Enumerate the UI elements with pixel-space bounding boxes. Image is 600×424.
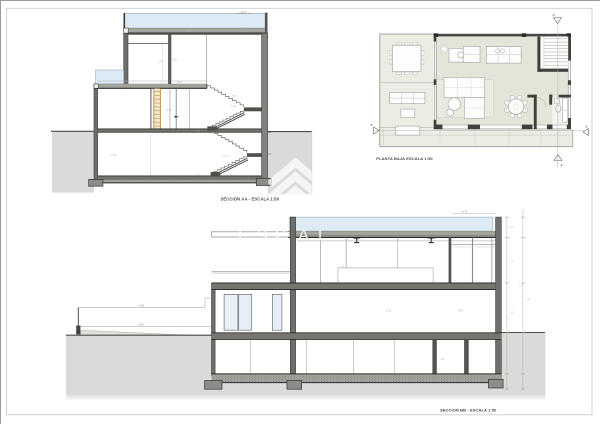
svg-text:B: B: [586, 125, 588, 129]
svg-text:PLANTA BAJA ESCALA 1:50: PLANTA BAJA ESCALA 1:50: [376, 156, 433, 161]
svg-text:P: P: [275, 228, 286, 245]
svg-text:L: L: [318, 228, 327, 245]
svg-text:-0.45: -0.45: [138, 324, 144, 327]
svg-text:+0.00: +0.00: [195, 131, 201, 133]
svg-text:+3.35: +3.35: [186, 31, 192, 33]
svg-text:+3.00: +3.00: [177, 82, 183, 84]
svg-text:7.30: 7.30: [440, 359, 445, 361]
svg-text:+0.00: +0.00: [138, 304, 145, 307]
svg-text:+3.35: +3.35: [242, 27, 248, 29]
svg-text:S: S: [257, 228, 268, 245]
svg-text:16x18.7: 16x18.7: [222, 156, 230, 158]
svg-text:SECCION AA - ESCALA 1:50: SECCION AA - ESCALA 1:50: [221, 196, 280, 201]
svg-text:16x18.7: 16x18.7: [231, 105, 239, 107]
svg-text:2.70: 2.70: [158, 61, 163, 64]
svg-text:2.70: 2.70: [387, 311, 392, 313]
svg-text:2.70: 2.70: [167, 109, 172, 112]
svg-text:2.70: 2.70: [172, 59, 177, 62]
svg-text:E: E: [238, 228, 249, 245]
svg-text:-1.05: -1.05: [195, 174, 201, 176]
svg-text:-1.00: -1.00: [111, 154, 117, 157]
svg-text:2.45: 2.45: [458, 311, 463, 313]
svg-text:SECCION BB - ESCALA 1:50: SECCION BB - ESCALA 1:50: [440, 407, 497, 412]
svg-text:A: A: [298, 228, 309, 245]
svg-text:B: B: [371, 123, 373, 127]
svg-text:+6.70: +6.70: [461, 210, 468, 213]
